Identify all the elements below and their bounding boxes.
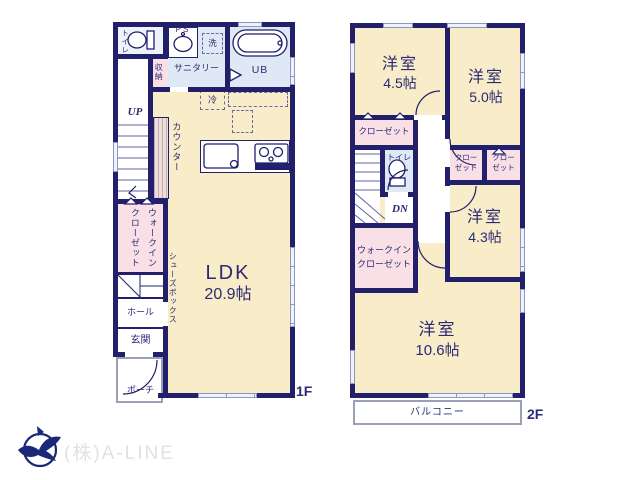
room-porch bbox=[116, 357, 163, 403]
room-size-50: 5.0帖 bbox=[450, 89, 522, 105]
stairwell-2f bbox=[355, 150, 380, 223]
counter-hatch bbox=[153, 117, 169, 199]
room-walkin-closet-2f bbox=[355, 228, 413, 288]
window bbox=[383, 23, 413, 28]
door-opening bbox=[414, 115, 442, 120]
room-label-wic-2f-line2: クローゼット bbox=[355, 259, 413, 269]
window bbox=[238, 22, 262, 27]
room-label-storage: 収納 bbox=[154, 63, 163, 85]
room-size-106: 10.6帖 bbox=[375, 342, 500, 359]
wall bbox=[118, 272, 163, 275]
stairs-down-label: DN bbox=[386, 203, 414, 216]
room-label-entrance: 玄関 bbox=[118, 335, 163, 347]
wall bbox=[450, 277, 520, 282]
wall bbox=[355, 145, 418, 150]
window bbox=[113, 142, 118, 172]
shoe-box bbox=[118, 275, 163, 297]
room-label-toilet-1f: トイレ bbox=[120, 29, 129, 55]
wall bbox=[255, 163, 290, 170]
dashed-box bbox=[232, 110, 253, 133]
floor-label-1f: 1F bbox=[296, 383, 312, 399]
room-label-106: 洋室 bbox=[375, 320, 500, 340]
room-label-ub: UB bbox=[230, 64, 290, 76]
floorplan-1f: トイレ PS 洗 サニタリー 収納 UB UP カウンター 冷 LDK 20.9… bbox=[113, 22, 295, 398]
floor-label-2f: 2F bbox=[527, 406, 543, 422]
room-label-closet: クローゼット bbox=[355, 127, 413, 137]
balcony-label: バルコニー bbox=[353, 407, 522, 419]
stairwell-1f bbox=[118, 54, 148, 199]
door-opening bbox=[170, 87, 188, 92]
room-label-wic-1f: ウォークインクローゼット bbox=[122, 208, 160, 268]
company-logo bbox=[16, 423, 64, 471]
room-label-ps: PS bbox=[168, 25, 198, 34]
door-opening bbox=[125, 352, 153, 357]
door-opening bbox=[445, 139, 450, 167]
wall bbox=[118, 199, 168, 204]
floorplan-canvas: トイレ PS 洗 サニタリー 収納 UB UP カウンター 冷 LDK 20.9… bbox=[0, 0, 640, 480]
closet-small-right-line1: クロー bbox=[487, 154, 520, 163]
room-bath-ub bbox=[230, 27, 290, 87]
window bbox=[447, 23, 487, 28]
room-label-wash: 洗 bbox=[202, 39, 223, 49]
closet-small-left-line2: ゼット bbox=[450, 164, 482, 173]
room-label-sanitary: サニタリー bbox=[168, 63, 225, 73]
window bbox=[350, 350, 355, 384]
room-size-43: 4.3帖 bbox=[450, 229, 520, 245]
room-label-ldk: LDK bbox=[168, 262, 288, 285]
room-label-wic-2f-line1: ウォークイン bbox=[355, 245, 413, 255]
company-watermark: (株)A-LINE bbox=[64, 438, 175, 465]
wall bbox=[118, 327, 163, 329]
wall bbox=[413, 223, 418, 293]
wall bbox=[225, 27, 230, 87]
room-size-ldk: 20.9帖 bbox=[168, 286, 288, 304]
wall bbox=[450, 180, 520, 185]
window bbox=[290, 247, 295, 327]
room-label-hall: ホール bbox=[118, 307, 163, 317]
window bbox=[290, 57, 295, 85]
shoe-box-label: シューズボックス bbox=[168, 252, 177, 340]
stairs-up-label: UP bbox=[121, 106, 149, 119]
room-size-45: 4.5帖 bbox=[355, 75, 445, 91]
dashed-box bbox=[228, 92, 288, 107]
balcony-door-window bbox=[428, 393, 513, 398]
window bbox=[520, 228, 525, 272]
room-label-toilet-2f: トイレ bbox=[385, 153, 413, 162]
wall bbox=[350, 23, 525, 28]
door-opening bbox=[388, 192, 408, 197]
room-label-45: 洋室 bbox=[355, 56, 445, 74]
hall-2f bbox=[418, 120, 445, 243]
wall bbox=[118, 297, 163, 299]
counter-label: カウンター bbox=[171, 122, 181, 194]
floorplan-2f: 洋室 4.5帖 洋室 5.0帖 クローゼット トイレ DN クロー ゼット クロ… bbox=[350, 23, 525, 427]
room-label-43: 洋室 bbox=[450, 209, 520, 227]
wall bbox=[355, 223, 418, 228]
wall bbox=[355, 288, 418, 293]
wall bbox=[113, 22, 295, 27]
fridge-label: 冷 bbox=[200, 95, 225, 105]
window bbox=[520, 289, 525, 313]
room-label-50: 洋室 bbox=[450, 69, 522, 87]
room-label-porch: ポーチ bbox=[118, 385, 163, 395]
closet-small-right-line2: ゼット bbox=[487, 164, 520, 173]
window bbox=[198, 393, 257, 398]
closet-small-left-line1: クロー bbox=[450, 154, 482, 163]
wall bbox=[148, 54, 153, 204]
